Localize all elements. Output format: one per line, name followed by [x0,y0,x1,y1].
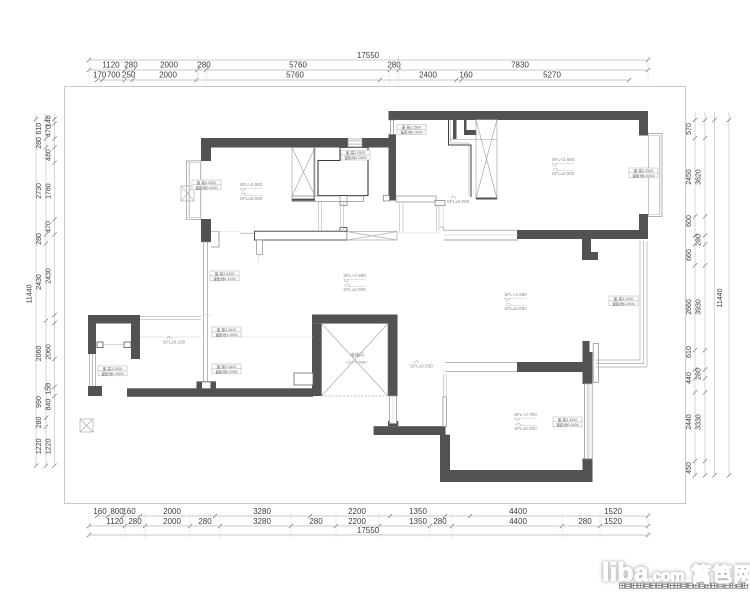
svg-text:窗距地1.0900: 窗距地1.0900 [344,155,366,160]
svg-text:2660: 2660 [686,299,693,315]
svg-text:700: 700 [107,71,121,80]
svg-text:SFL±0.000: SFL±0.000 [552,171,575,176]
svg-text:2000: 2000 [159,71,177,80]
svg-text:280: 280 [128,517,142,526]
svg-text:1350: 1350 [409,517,427,526]
svg-text:电梯间: 电梯间 [350,352,364,359]
svg-text:570: 570 [686,123,693,135]
svg-text:窗 高3.2500: 窗 高3.2500 [346,150,366,155]
svg-text:1220: 1220 [46,438,53,454]
svg-text:17550: 17550 [357,51,380,60]
svg-text:窗 高3.2500: 窗 高3.2500 [402,124,422,129]
svg-text:窗距地0.0900: 窗距地0.0900 [556,422,578,427]
svg-text:2000: 2000 [163,507,181,516]
svg-text:990: 990 [36,396,43,408]
svg-text:610: 610 [36,123,43,135]
svg-text:11440: 11440 [27,284,34,303]
svg-text:2440: 2440 [686,414,693,430]
svg-text:160: 160 [459,71,473,80]
svg-text:LIFT LOBBY: LIFT LOBBY [346,361,368,365]
svg-text:2430: 2430 [46,268,53,284]
svg-text:11440: 11440 [717,288,724,307]
svg-text:2200: 2200 [348,507,366,516]
svg-text:SFL±0.030: SFL±0.030 [410,364,433,369]
svg-text:窗距地0.1600: 窗距地0.1600 [101,371,123,376]
svg-text:480: 480 [46,149,53,161]
svg-text:1120: 1120 [106,517,124,526]
svg-text:280: 280 [696,368,703,380]
svg-text:窗距地0.0900: 窗距地0.0900 [215,369,237,374]
svg-text:窗 高3.2200: 窗 高3.2200 [215,271,235,276]
svg-text:5270: 5270 [543,71,561,80]
svg-text:280: 280 [578,517,592,526]
svg-text:3930: 3930 [696,299,703,315]
svg-text:3620: 3620 [696,169,703,185]
svg-text:5760: 5760 [289,61,307,70]
svg-text:SFL±0.080: SFL±0.080 [447,199,470,204]
svg-text:160: 160 [122,507,136,516]
svg-text:170: 170 [93,71,107,80]
svg-text:1520: 1520 [604,507,622,516]
svg-text:窗 高3.2600: 窗 高3.2600 [217,327,237,332]
svg-text:280: 280 [433,517,447,526]
svg-text:2000: 2000 [163,517,181,526]
svg-text:440: 440 [686,372,693,384]
svg-text:2400: 2400 [419,71,437,80]
svg-text:280: 280 [36,416,43,428]
svg-text:窗距地0.3900: 窗距地0.3900 [612,301,634,306]
svg-text:3280: 3280 [253,517,271,526]
svg-text:SFL+2.680: SFL+2.680 [552,157,575,162]
svg-text:280: 280 [198,517,212,526]
svg-text:160: 160 [93,507,107,516]
svg-text:SFL±0.000: SFL±0.000 [240,196,263,201]
svg-text:450: 450 [686,462,693,474]
svg-text:SFL+2.680: SFL+2.680 [504,292,527,297]
svg-text:4400: 4400 [509,517,527,526]
svg-text:SFL±0.000: SFL±0.000 [514,426,537,431]
svg-text:2060: 2060 [46,344,53,360]
svg-text:窗 高3.2500: 窗 高3.2500 [197,180,217,185]
svg-text:470: 470 [46,125,53,137]
svg-text:窗 高3.3300: 窗 高3.3300 [558,417,578,422]
svg-text:280: 280 [309,517,323,526]
svg-text:窗 高3.2500: 窗 高3.2500 [634,168,654,173]
svg-text:SFL±0.000: SFL±0.000 [504,306,527,311]
svg-text:2000: 2000 [160,61,178,70]
svg-text:SFL+2.790: SFL+2.790 [514,412,537,417]
svg-text:SFL±0.180: SFL±0.180 [163,340,186,345]
svg-text:470: 470 [46,221,53,233]
svg-text:1220: 1220 [36,438,43,454]
svg-text:280: 280 [696,234,703,246]
svg-text:SFL+2.680: SFL+2.680 [343,273,366,278]
svg-text:2200: 2200 [348,517,366,526]
svg-text:1520: 1520 [604,517,622,526]
svg-text:280: 280 [36,233,43,245]
svg-text:窗 高3.2500: 窗 高3.2500 [103,366,123,371]
svg-text:1780: 1780 [46,183,53,199]
svg-text:3280: 3280 [253,507,271,516]
svg-text:SFL±0.000: SFL±0.000 [343,287,366,292]
svg-text:窗距地0.0900: 窗距地0.0900 [400,129,422,134]
svg-text:2450: 2450 [686,169,693,185]
svg-text:2060: 2060 [36,346,43,362]
svg-text:610: 610 [686,346,693,358]
svg-text:17550: 17550 [357,526,380,535]
svg-text:600: 600 [686,215,693,227]
svg-text:2430: 2430 [36,274,43,290]
svg-text:SFL+2.680: SFL+2.680 [240,182,263,187]
svg-text:280: 280 [387,61,401,70]
svg-text:窗距地0.1200: 窗距地0.1200 [213,276,235,281]
svg-text:150: 150 [46,383,53,395]
svg-text:280: 280 [197,61,211,70]
svg-text:280: 280 [36,137,43,149]
svg-text:窗距地0.6300: 窗距地0.6300 [632,173,654,178]
svg-text:660: 660 [686,249,693,261]
svg-text:窗距地1.0900: 窗距地1.0900 [215,332,237,337]
svg-text:4400: 4400 [509,507,527,516]
svg-text:2730: 2730 [36,183,43,199]
svg-text:窗 高3.1300: 窗 高3.1300 [614,296,634,301]
svg-text:5760: 5760 [286,71,304,80]
svg-text:1350: 1350 [409,507,427,516]
svg-text:窗 高3.2600: 窗 高3.2600 [217,364,237,369]
svg-text:7830: 7830 [511,61,529,70]
svg-text:280: 280 [124,61,138,70]
svg-text:1120: 1120 [102,61,120,70]
svg-text:3330: 3330 [696,414,703,430]
svg-text:840: 840 [46,399,53,411]
svg-text:窗距地0.6300: 窗距地0.6300 [195,185,217,190]
